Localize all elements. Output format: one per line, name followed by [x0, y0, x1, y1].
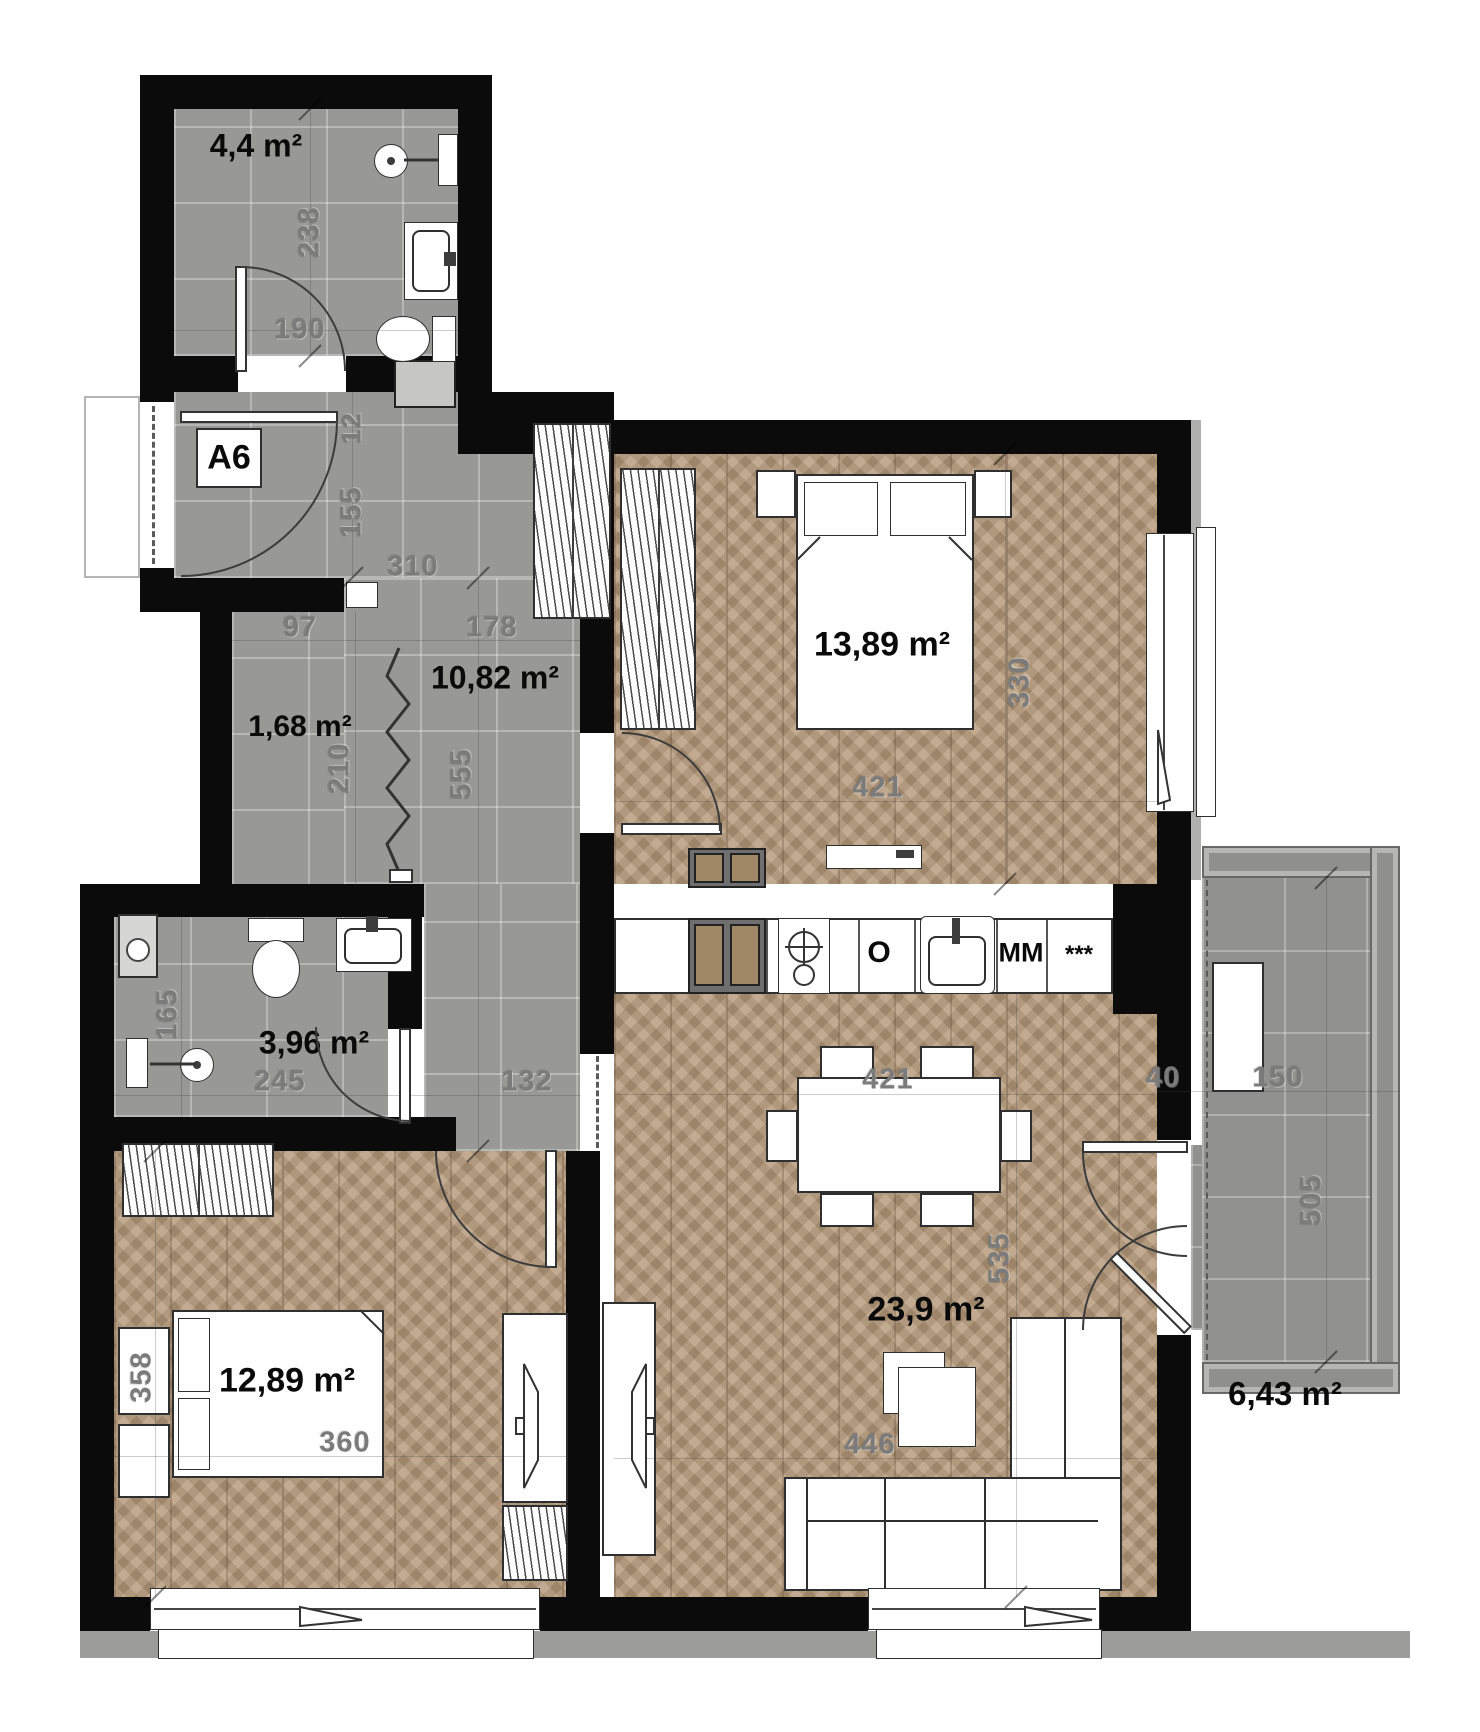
sofa-bottom [784, 1477, 1122, 1591]
shower-panel-main [126, 1038, 148, 1088]
wall-bath-main-top [80, 884, 424, 917]
dim-421-bed: 421 [852, 772, 903, 805]
sink-main-basin [344, 928, 402, 964]
corridor-living-threshold [596, 1056, 599, 1148]
window-bedroom-right [1146, 533, 1194, 812]
dim-310: 310 [387, 551, 438, 584]
wall-bath-top [140, 75, 492, 109]
wall-bedleft-living [566, 1151, 600, 1597]
dim-178: 178 [466, 612, 517, 645]
dim-97: 97 [283, 612, 317, 645]
bath-main-door-leaf [400, 1029, 410, 1123]
dim-245: 245 [254, 1066, 305, 1099]
wall-right-upper [1157, 454, 1191, 535]
wall-closet-left [200, 612, 232, 887]
area-closet: 1,68 m² [248, 710, 351, 744]
dim-358: 358 [126, 1351, 159, 1402]
tv-unit-bedroom-left [502, 1313, 568, 1503]
threshold-box [346, 582, 378, 608]
area-bath-top: 4,4 m² [210, 128, 302, 165]
wall-right-lower [1157, 1335, 1191, 1597]
dim-190: 190 [274, 314, 325, 347]
radiator-grille [896, 850, 914, 858]
corridor-floor [424, 884, 580, 1151]
wall-left-lower [80, 884, 114, 1631]
wall-bottom-2 [540, 1597, 868, 1631]
balcony-floor [1202, 878, 1370, 1362]
window-bedroom-right-mullion [1163, 535, 1165, 810]
bedroom-right-wardrobe [620, 468, 696, 730]
stove [778, 918, 830, 994]
apartment-id: A6 [207, 439, 250, 478]
wall-vestibule-bottom [174, 578, 344, 612]
kitchen-tap [952, 918, 960, 944]
bedroom-left-wardrobe [122, 1143, 274, 1217]
dim-421-living: 421 [862, 1064, 913, 1097]
floor-plan: A6 O MM *** [0, 0, 1480, 1732]
pillow-left-1 [178, 1318, 210, 1392]
wall-bedroom-right-top [614, 420, 1191, 454]
guide [1016, 994, 1017, 1597]
toilet-main-tank [248, 918, 304, 942]
window-living-line [872, 1608, 1096, 1610]
counter-divider-1 [766, 920, 768, 992]
window-bedroom-left-line [154, 1608, 536, 1610]
tv-unit-living [602, 1302, 656, 1556]
dim-40: 40 [1146, 1062, 1180, 1095]
dim-155: 155 [336, 486, 369, 537]
counter-divider-5 [1046, 920, 1048, 992]
dresser-2 [118, 1424, 170, 1498]
oven-label: O [867, 936, 890, 970]
shower-panel-top [438, 134, 458, 186]
washing-machine-door [126, 938, 150, 962]
tall-cabinet-bedroom-door1 [694, 853, 724, 883]
area-bath-main: 3,96 m² [259, 1025, 369, 1062]
area-living: 23,9 m² [867, 1291, 984, 1330]
area-hall: 10,82 m² [431, 660, 559, 697]
hall-wardrobe [533, 423, 611, 619]
dim-330: 330 [1004, 656, 1037, 707]
nightstand-left [756, 470, 796, 518]
wall-bath-top-right [458, 109, 492, 392]
sink-main-tap [366, 916, 378, 932]
sofa-armrest [806, 1479, 808, 1589]
sofa-seat-line [808, 1520, 1098, 1522]
window-living-sill [876, 1629, 1102, 1659]
hall-floor [344, 578, 580, 884]
dim-150: 150 [1252, 1062, 1303, 1095]
counter-divider-3 [914, 920, 916, 992]
shaft-duct [394, 360, 456, 408]
wall-right-mid [1157, 810, 1191, 884]
window-bedroom-left-sill [158, 1629, 534, 1659]
dim-238: 238 [294, 206, 327, 257]
nightstand-right [974, 470, 1012, 518]
dim-165: 165 [152, 988, 185, 1039]
balcony-rail-right [1370, 846, 1400, 1394]
window-bedroom-right-sill [1196, 527, 1216, 817]
toilet-top-tank [432, 316, 456, 362]
sofa-chaise-line [1064, 1319, 1066, 1477]
sink-top-tap [444, 252, 456, 266]
area-balcony: 6,43 m² [1228, 1375, 1342, 1413]
entrance-opening [140, 402, 174, 568]
balcony-threshold [1191, 1145, 1202, 1330]
dim-12: 12 [337, 412, 368, 444]
dim-555: 555 [446, 748, 479, 799]
tall-cabinet-kitchen-door2 [730, 924, 760, 986]
area-bed-left: 12,89 m² [219, 1362, 355, 1401]
wall-kitchen-pillar [1113, 884, 1157, 1014]
tall-cabinet-kitchen-door1 [694, 924, 724, 986]
chair-left [766, 1110, 798, 1162]
stair-landing [84, 396, 140, 578]
wall-bottom-3 [1100, 1597, 1191, 1631]
area-bed-right: 13,89 m² [814, 626, 950, 665]
fridge-label: *** [1065, 941, 1093, 969]
chair-top-2 [920, 1046, 974, 1080]
guide [1326, 878, 1327, 1362]
dim-360: 360 [319, 1427, 370, 1460]
wall-right-kitchen [1157, 884, 1191, 1140]
pillow-left-2 [178, 1398, 210, 1470]
shower-head-main-dot [193, 1061, 201, 1069]
tall-cabinet-bedroom-door2 [730, 853, 760, 883]
sofa-div-2 [984, 1479, 986, 1589]
entrance-threshold-dashed [152, 406, 155, 564]
coffee-table-large [898, 1367, 976, 1447]
dim-446: 446 [844, 1429, 895, 1462]
dim-505: 505 [1296, 1174, 1329, 1225]
chair-bottom-2 [920, 1193, 974, 1227]
shower-head-top-dot [387, 157, 395, 165]
wall-hall-kitchen [580, 833, 614, 1054]
balcony-edge-dashed-line [1206, 880, 1208, 1360]
toilet-main-bowl [252, 940, 300, 998]
dim-535: 535 [984, 1232, 1017, 1283]
microwave-label: MM [999, 938, 1044, 969]
pillow-2 [890, 482, 966, 536]
sofa-chaise [1010, 1317, 1122, 1479]
chair-bottom-1 [820, 1193, 874, 1227]
dim-132: 132 [501, 1066, 552, 1099]
counter-divider-2 [858, 920, 860, 992]
wall-bath-top-divider-left [174, 356, 238, 392]
bedroom-left-cabinet [502, 1505, 568, 1581]
dim-210: 210 [324, 742, 357, 793]
pillow-1 [804, 482, 878, 536]
sofa-div-1 [884, 1479, 886, 1589]
toilet-top-bowl [376, 316, 430, 362]
wall-bottom-1 [80, 1597, 150, 1631]
